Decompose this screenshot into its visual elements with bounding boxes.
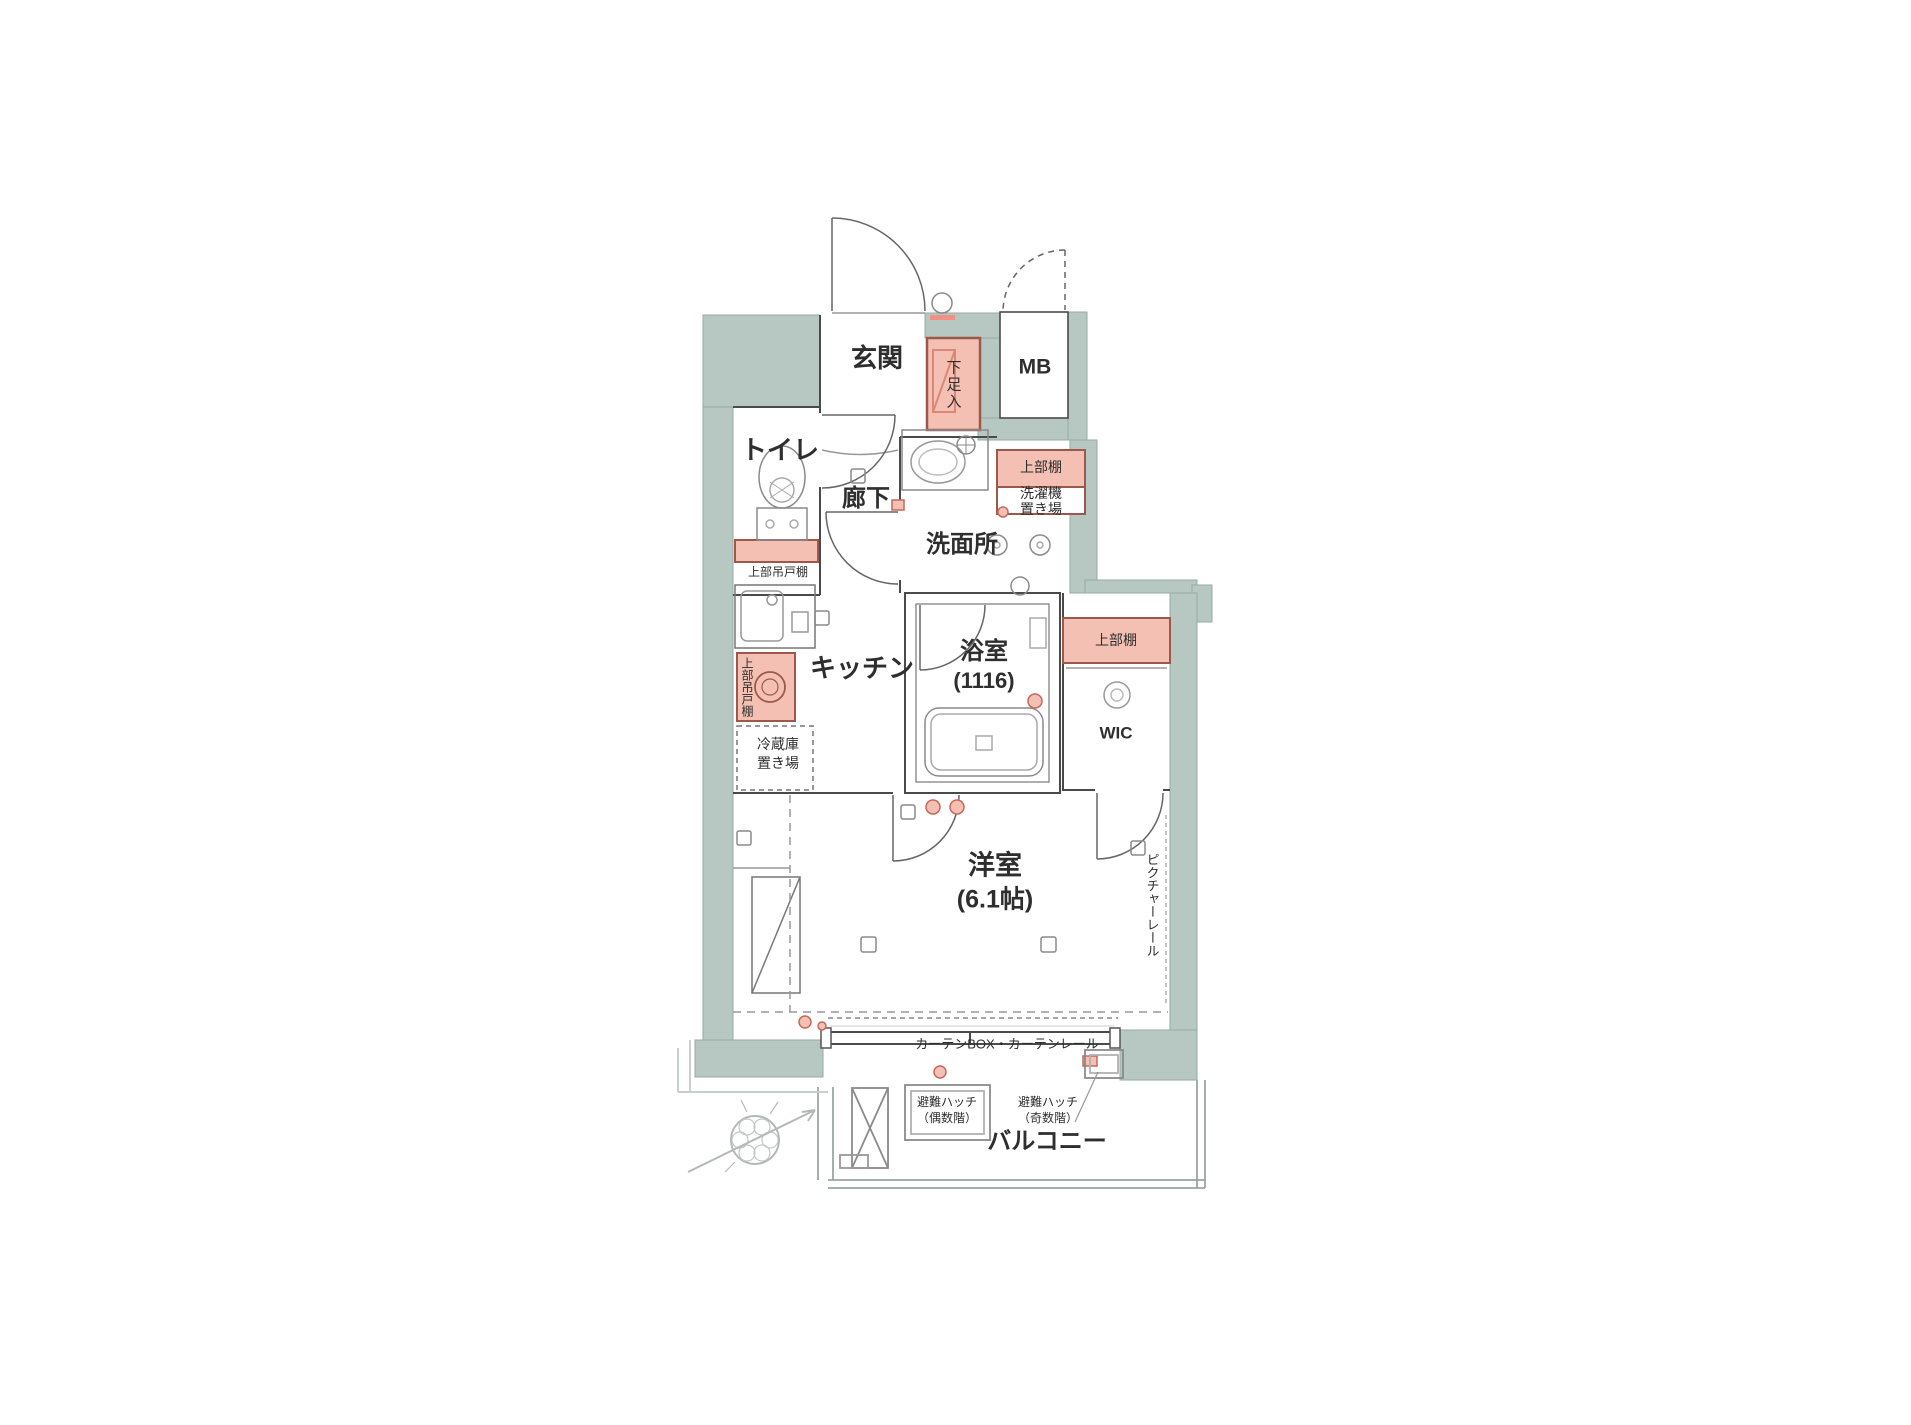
room-label-mb: MB [1019, 357, 1052, 378]
mb-door-dashed [1003, 250, 1065, 312]
wall-wic-top [1085, 580, 1197, 593]
room-label-bathroom: 浴室 [960, 640, 1008, 664]
wall-bottom-right-block [1120, 1030, 1197, 1080]
room-label-wic: WIC [1099, 725, 1132, 742]
label-hatch-even-2: （偶数階） [917, 1112, 977, 1124]
balcony-partition [818, 1087, 833, 1180]
wall-bottom-left-block [695, 1040, 823, 1077]
wall-left [703, 407, 733, 1040]
balcony-railing [828, 1180, 1205, 1188]
north-arrow [688, 1110, 815, 1172]
wall-right-lower [1170, 593, 1197, 1035]
wall-right-upper [1068, 312, 1087, 440]
room-label-balcony: バルコニー [987, 1130, 1107, 1154]
label-kitchen-cabinet: 上部吊戸棚 [741, 657, 753, 717]
label-hatch-odd-1: 避難ハッチ [1018, 1096, 1078, 1108]
toilet-upper-shelf [735, 540, 818, 562]
label-washer-place-1: 洗濯機 [1020, 486, 1062, 500]
label-fridge-1: 冷蔵庫 [757, 737, 799, 751]
wall-shoebox-mb [978, 338, 1000, 418]
entrance-pink-mark [930, 315, 955, 320]
room-label-western-room: 洋室 [968, 853, 1022, 880]
label-toilet-shelf: 上部吊戸棚 [748, 566, 808, 578]
compass [688, 1100, 815, 1172]
entrance-door [832, 218, 925, 311]
label-picture-rail: ピクチャーレール [1146, 853, 1159, 957]
room-label-hallway: 廊下 [842, 487, 890, 511]
partition-xbox [840, 1088, 888, 1168]
label-washer-place-2: 置き場 [1020, 502, 1062, 516]
room-label-bathroom-size: (1116) [953, 670, 1014, 692]
label-hatch-odd-2: （奇数階） [1018, 1112, 1078, 1124]
room-label-kitchen: キッチン [810, 655, 914, 681]
label-hatch-even-1: 避難ハッチ [917, 1096, 977, 1108]
floorplan-page: 玄関 MB 下足入 トイレ 上部吊戸棚 廊下 洗面所 上部棚 洗濯機 置き場 キ… [0, 0, 1911, 1425]
label-washer-shelf: 上部棚 [1020, 460, 1062, 474]
floorplan-drawing [0, 0, 1911, 1425]
room-label-toilet: トイレ [741, 437, 819, 463]
wall-top-left-block [703, 315, 820, 407]
room-label-washroom: 洗面所 [926, 533, 998, 557]
room-label-western-room-size: (6.1帖) [957, 888, 1033, 913]
label-fridge-2: 置き場 [757, 756, 799, 770]
room-label-genkan: 玄関 [851, 345, 903, 371]
label-wic-shelf: 上部棚 [1095, 633, 1137, 647]
label-shoe-box: 下足入 [946, 360, 961, 411]
label-curtain-rail: カーテンBOX・カーテンレール [915, 1038, 1098, 1051]
